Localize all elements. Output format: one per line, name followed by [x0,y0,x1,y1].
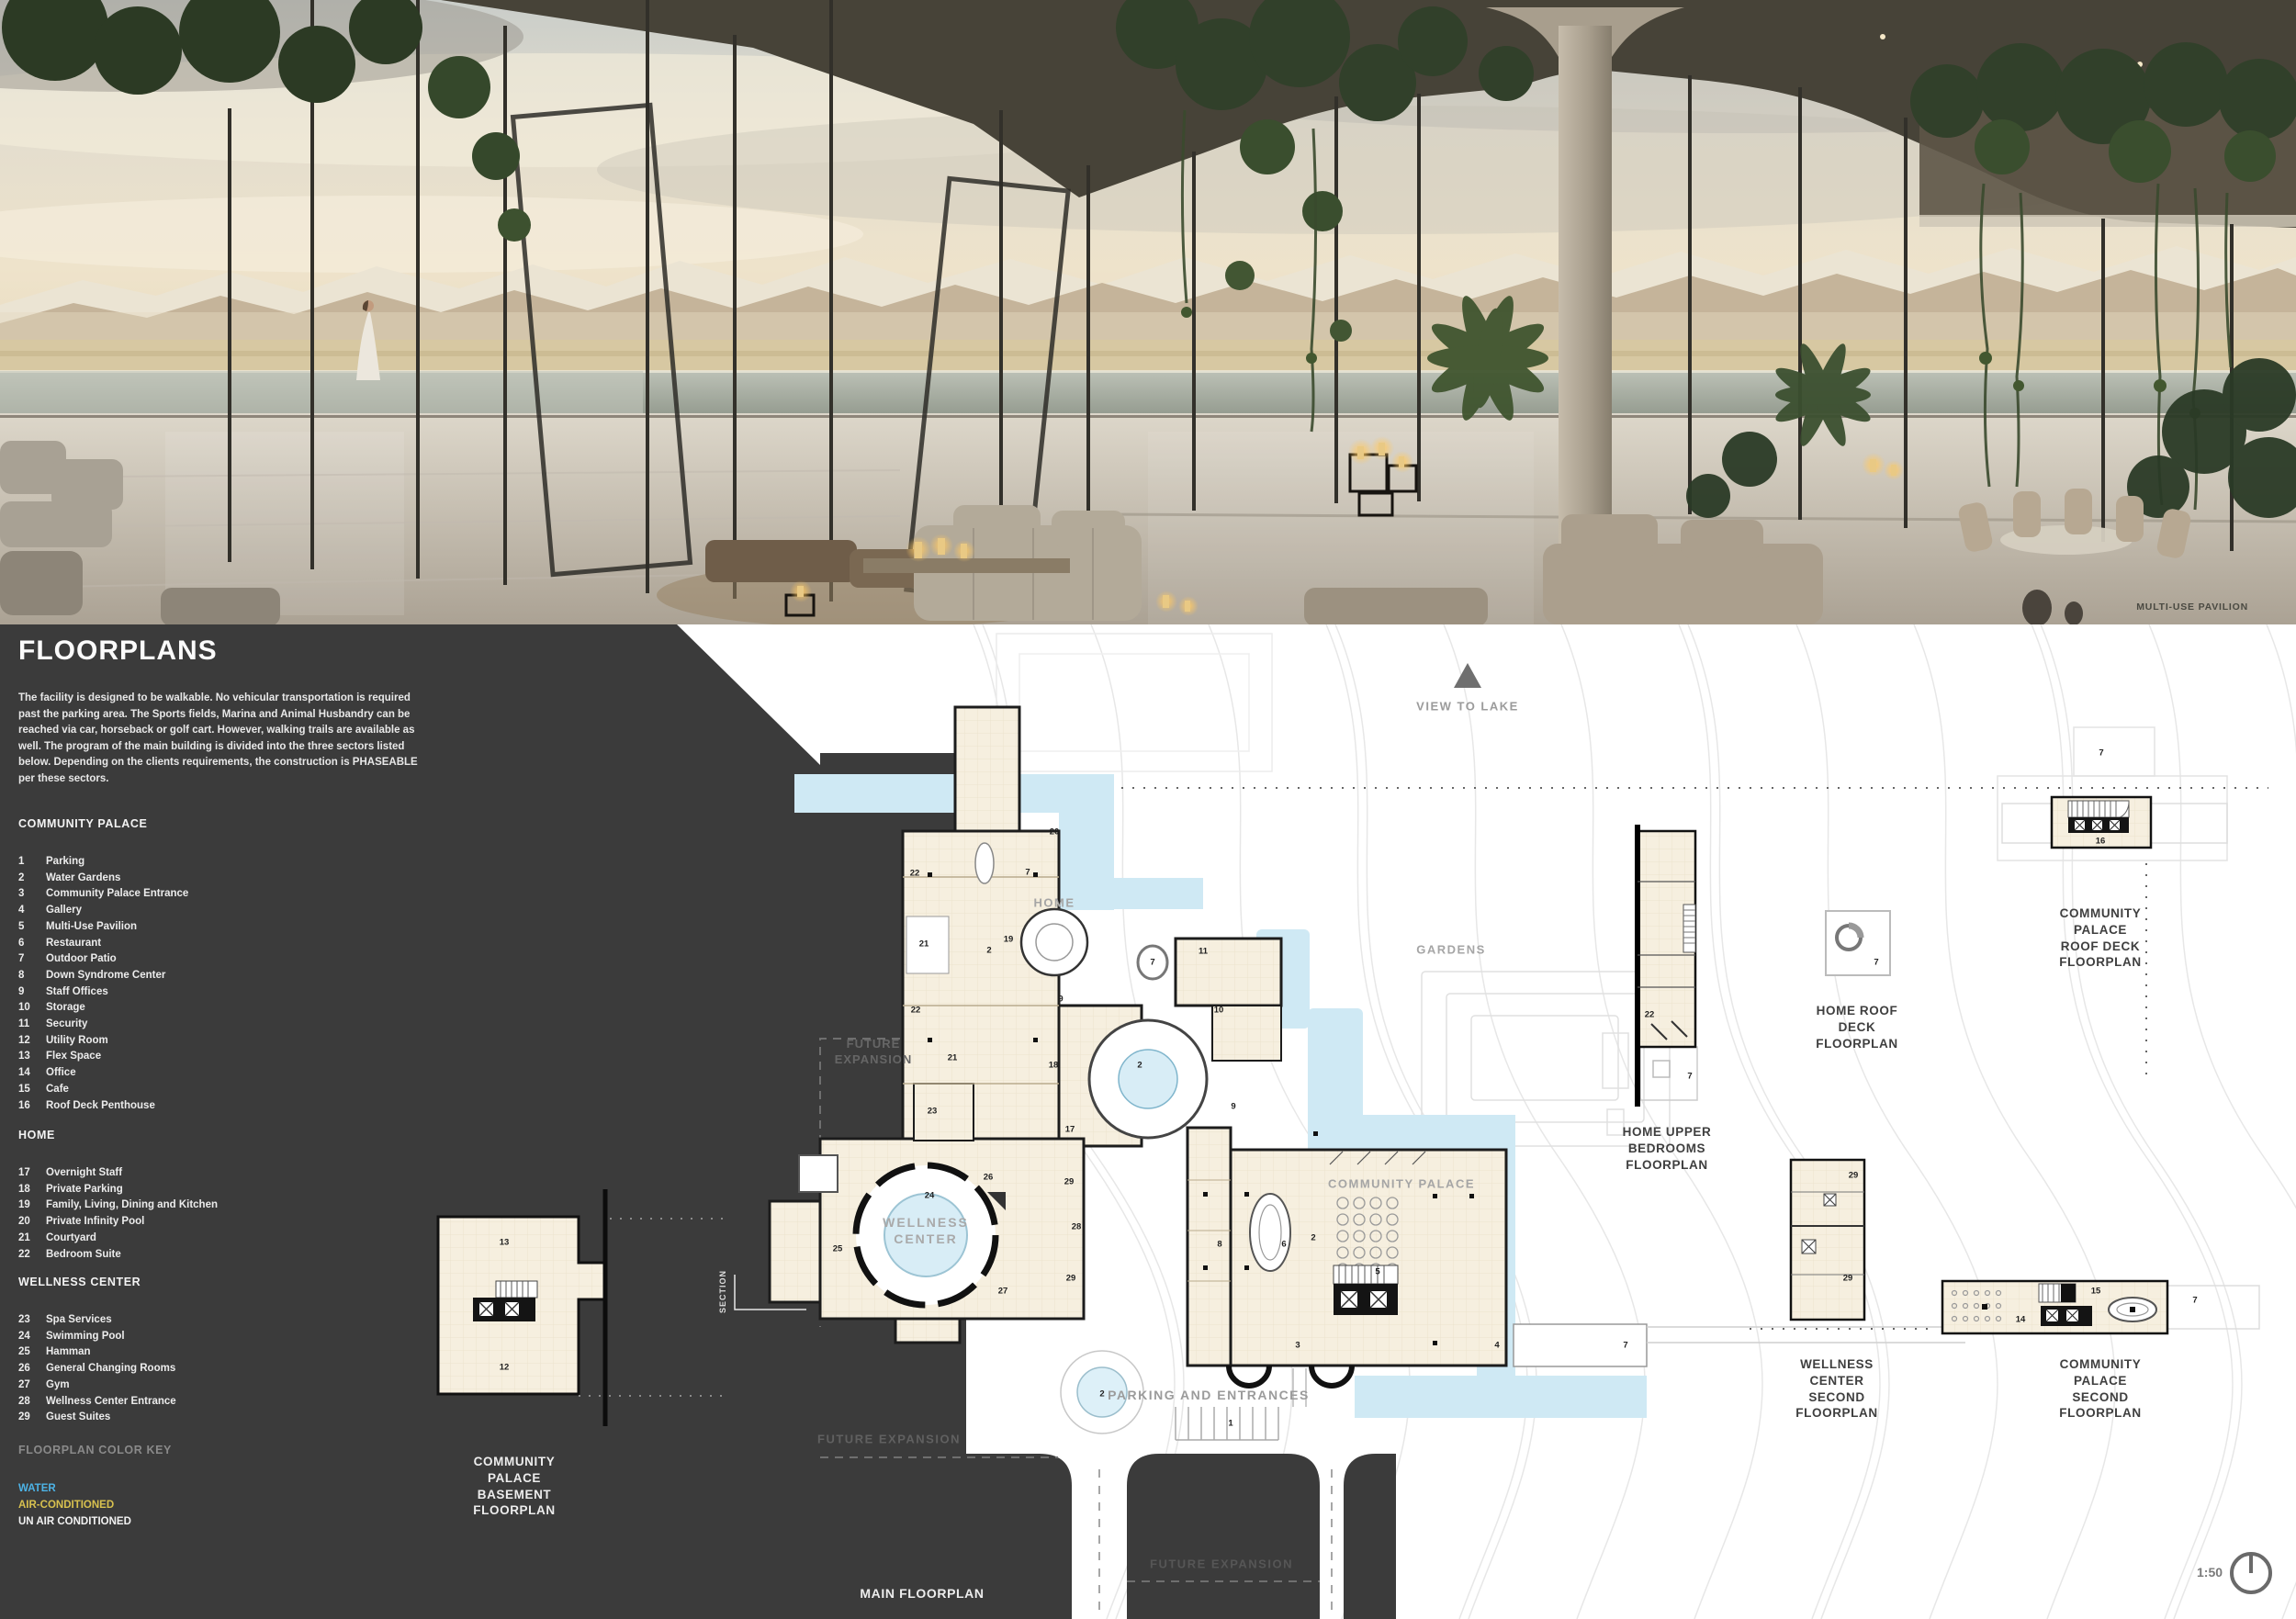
legend-item: 26General Changing Rooms [18,1361,404,1377]
room-number: 29 [1066,1274,1076,1284]
room-number: 11 [1199,947,1208,957]
room-number: 25 [833,1244,843,1254]
room-number: 22 [1645,1010,1655,1020]
room-number: 18 [1049,1061,1059,1071]
room-number: 2 [986,946,991,956]
room-number: 2 [1099,1389,1104,1400]
legend-item: 16Roof Deck Penthouse [18,1098,404,1115]
room-number: 29 [1843,1274,1853,1284]
legend-section: HOME17Overnight Staff18Private Parking19… [18,1129,404,1263]
page-title: FLOORPLANS [18,635,218,667]
room-number: 7 [2099,748,2103,759]
legend-item: 21Courtyard [18,1231,404,1247]
legend-item: 8Down Syndrome Center [18,968,404,984]
room-number: 7 [1687,1072,1692,1082]
legend-section-heading: WELLNESS CENTER [18,1276,404,1288]
photo-caption: MULTI-USE PAVILION [2136,602,2248,613]
room-number: 2 [1311,1233,1315,1243]
room-number: 5 [1375,1267,1379,1277]
color-key-entry: UN AIR CONDITIONED [18,1513,404,1530]
room-number: 29 [1064,1177,1075,1187]
legend-item: 25Hamman [18,1344,404,1361]
legend-item: 29Guest Suites [18,1410,404,1426]
color-key-heading: FLOORPLAN COLOR KEY [18,1444,404,1456]
legend-item: 19Family, Living, Dining and Kitchen [18,1197,404,1214]
legend-item: 17Overnight Staff [18,1165,404,1182]
room-number: 26 [984,1173,994,1183]
room-number: 7 [2192,1296,2197,1306]
room-number: 6 [1281,1240,1286,1250]
legend-item: 11Security [18,1017,404,1033]
scale-label: 1:50 [2197,1565,2223,1580]
legend-item: 2Water Gardens [18,871,404,887]
area-label: COMMUNITY PALACE [1328,1177,1475,1191]
area-label: HOME [1034,896,1075,910]
legend-item: 28Wellness Center Entrance [18,1394,404,1411]
floorplan-caption: COMMUNITYPALACESECONDFLOORPLAN [2059,1356,2141,1422]
legend-section-heading: HOME [18,1129,404,1141]
room-number: 3 [1295,1341,1300,1351]
legend-section: WELLNESS CENTER23Spa Services24Swimming … [18,1276,404,1426]
legend-item: 20Private Infinity Pool [18,1214,404,1231]
room-number: 28 [1072,1222,1082,1232]
room-number: 8 [1217,1240,1221,1250]
legend-item: 3Community Palace Entrance [18,886,404,903]
pavilion-rendering [0,0,2296,624]
intro-paragraph: The facility is designed to be walkable.… [18,691,433,788]
legend-item: 23Spa Services [18,1312,404,1329]
presentation-board: FLOORPLANS The facility is designed to b… [0,0,2296,1619]
room-number: 17 [1065,1125,1075,1135]
room-number: 1 [1228,1419,1232,1429]
legend-item: 22Bedroom Suite [18,1247,404,1264]
area-label: FUTURE EXPANSION [1150,1557,1293,1571]
floorplan-caption: WELLNESSCENTER [883,1214,969,1248]
legend-item: 27Gym [18,1377,404,1394]
floorplan-color-key: FLOORPLAN COLOR KEY WATERAIR-CONDITIONED… [18,1444,404,1530]
palace-second-plan [1942,1281,2167,1333]
floorplan-caption: COMMUNITYPALACEROOF DECKFLOORPLAN [2059,905,2141,971]
section-marker: SECTION [718,1273,727,1313]
wellness-second-plan [1791,1160,1864,1320]
room-number: 21 [948,1053,958,1063]
floorplan-caption: HOME ROOFDECKFLOORPLAN [1816,1003,1897,1051]
room-number: 7 [1623,1341,1627,1351]
room-number: 29 [1849,1171,1859,1181]
color-key-entry: AIR-CONDITIONED [18,1497,404,1513]
legend-item: 13Flex Space [18,1049,404,1065]
room-number: 16 [2096,837,2106,847]
legend-item: 5Multi-Use Pavilion [18,919,404,936]
interior-floor [0,413,2296,624]
room-number: 20 [1050,827,1060,838]
area-label: FUTURE EXPANSION [817,1433,961,1446]
legend-item: 12Utility Room [18,1033,404,1050]
legend-item: 10Storage [18,1000,404,1017]
legend-item: 18Private Parking [18,1182,404,1198]
legend-item: 24Swimming Pool [18,1329,404,1345]
plains-and-lake [0,340,2296,417]
legend-item: 1Parking [18,854,404,871]
room-number: 22 [910,869,920,879]
room-number: 22 [911,1006,921,1016]
legend-item: 15Cafe [18,1082,404,1098]
room-number: 7 [1874,958,1878,968]
home-roof-deck-plan [1826,911,1890,975]
room-number: 7 [1150,958,1154,968]
floorplan-caption: MAIN FLOORPLAN [860,1585,984,1602]
room-number: 24 [925,1191,935,1201]
floorplan-caption: FUTUREEXPANSION [835,1036,913,1067]
floorplan-caption: COMMUNITYPALACEBASEMENTFLOORPLAN [473,1454,555,1519]
room-number: 23 [928,1107,938,1117]
room-number: 9 [1231,1102,1235,1112]
legend-item: 9Staff Offices [18,984,404,1001]
floorplan-caption: HOME UPPERBEDROOMSFLOORPLAN [1623,1124,1712,1173]
room-number: 10 [1214,1006,1224,1016]
room-number: 2 [1137,1061,1142,1071]
legend-item: 14Office [18,1065,404,1082]
legend-item: 7Outdoor Patio [18,951,404,968]
room-number: 7 [1025,868,1030,878]
room-number: 21 [919,939,929,950]
room-number: 13 [500,1238,510,1248]
room-number: 4 [1494,1341,1499,1351]
area-label: GARDENS [1416,943,1486,957]
color-key-entry: WATER [18,1480,404,1497]
room-number: 27 [998,1287,1008,1297]
area-label: VIEW TO LAKE [1416,700,1519,714]
room-number: 14 [2016,1315,2026,1325]
room-number: 15 [2091,1287,2101,1297]
legend-item: 6Restaurant [18,936,404,952]
room-number: 19 [1004,935,1014,945]
room-number: 9 [1058,995,1063,1005]
floorplan-caption: WELLNESSCENTERSECONDFLOORPLAN [1795,1356,1877,1422]
area-label: PARKING AND ENTRANCES [1108,1388,1310,1402]
legend-section: COMMUNITY PALACE1Parking2Water Gardens3C… [18,817,404,1114]
legend-section-heading: COMMUNITY PALACE [18,817,404,830]
room-number: 12 [500,1363,510,1373]
legend-item: 4Gallery [18,903,404,919]
